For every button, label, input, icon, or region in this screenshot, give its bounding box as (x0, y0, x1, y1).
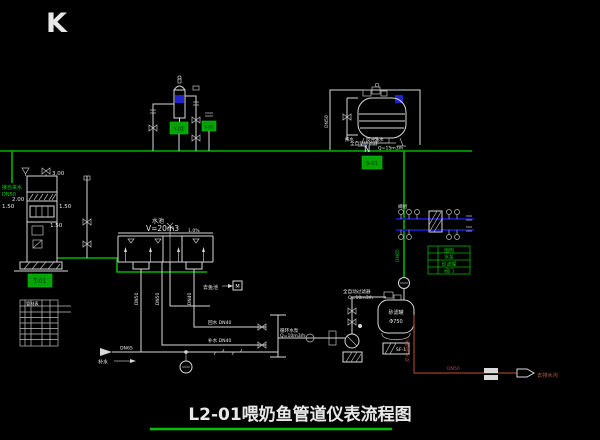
revision-marker: K (46, 8, 68, 39)
branch-box-glyph: M (235, 284, 239, 290)
legend-row-0: 图例 (444, 247, 454, 254)
pid-drawing: K T-01 接自来水 DN50 3.00 2.00 1. (0, 0, 600, 440)
legend-row-2: 砂滤罐 (442, 261, 457, 268)
north-label: N (364, 145, 370, 155)
dosing-tag-b: Y-02 (203, 125, 214, 131)
drain-tag-2: DN50 (155, 293, 161, 305)
dim-150a: 1.50 (2, 204, 15, 210)
filter-line-label-1: 全自动过滤器 (343, 288, 371, 295)
filter-line-label-2: Q=10m3/h (348, 295, 373, 301)
return-end-label: 去排水沟 (537, 371, 558, 379)
return-size-label: DN50 (447, 366, 460, 372)
parts-table-title: 管材表 (26, 300, 39, 307)
riser-label: DN65 (395, 249, 401, 262)
dim-200: 2.00 (12, 197, 25, 203)
dosing-vessel-level (175, 95, 184, 103)
filter-tag: S-01 (366, 161, 377, 167)
tank-volume: V=20m3 (146, 224, 179, 233)
tower-tag: T-01 (33, 278, 47, 285)
filter-side-label: DN50 (324, 115, 330, 128)
drain-tag-3: DN40 (187, 293, 193, 305)
drawing-title: L2-01喂奶鱼管道仪表流程图 (188, 404, 411, 425)
sand-filter-tag: SF-1 (396, 347, 406, 353)
branch-line1-label: 回水 DN40 (208, 319, 232, 326)
sand-filter-name-1: 砂滤罐 (388, 309, 403, 316)
makeup-label: 补水 (98, 359, 108, 366)
legend-row-3: 阀门 (444, 268, 454, 275)
dosing-tag-a: Y-01 (173, 127, 185, 133)
filter-name-2: Q=15m3/h (378, 146, 403, 152)
feed-label-1: 接自来水 (2, 184, 22, 191)
tank-slope: 1.0% (188, 228, 200, 234)
dim-150c: 1.50 (50, 223, 63, 229)
branch-line2-label: 补水 DN40 (208, 337, 232, 344)
source-label: DN65 (120, 346, 133, 352)
valve-station-label: 阀组 (398, 203, 408, 210)
sand-filter-name-2: Φ750 (389, 319, 402, 325)
legend-row-1: 水泵 (444, 254, 454, 261)
pipe-label-a: 排水 (345, 136, 354, 143)
return-vertical-label: 反冲洗排水 (404, 339, 411, 362)
pipe-label-b: 反冲洗水 (366, 136, 384, 143)
drain-tag-1: DN50 (134, 293, 140, 305)
pump-line-label-1: 循环水泵 (280, 327, 299, 334)
dim-150b: 1.50 (59, 204, 72, 210)
branch-label: 去鱼池 (203, 284, 218, 291)
dim-300: 3.00 (52, 171, 65, 177)
pump-line-label-2: Q=10m3/h (280, 333, 305, 339)
